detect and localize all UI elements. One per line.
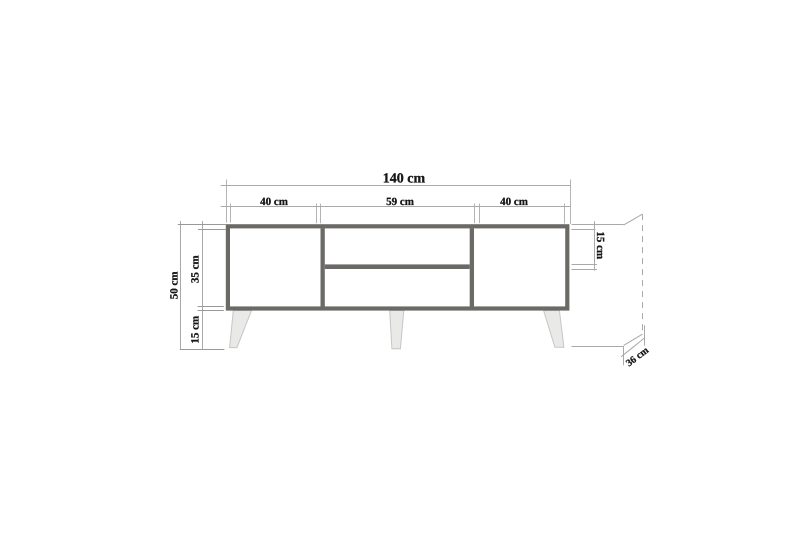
svg-text:140 cm: 140 cm (383, 172, 426, 187)
svg-text:50 cm: 50 cm (168, 272, 180, 300)
svg-text:40 cm: 40 cm (500, 196, 528, 208)
svg-text:15 cm: 15 cm (594, 231, 606, 259)
svg-text:15 cm: 15 cm (190, 316, 202, 344)
svg-text:40 cm: 40 cm (260, 196, 288, 208)
svg-text:59 cm: 59 cm (386, 196, 414, 208)
svg-text:35 cm: 35 cm (190, 255, 202, 283)
